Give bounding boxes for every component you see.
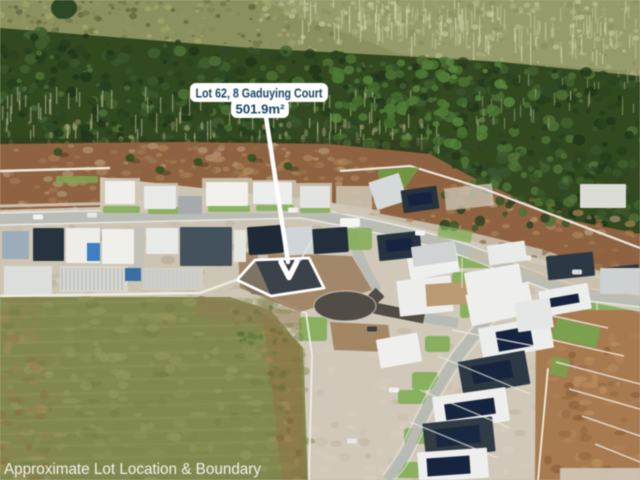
svg-text:Lot 62, 8 Gaduying Court: Lot 62, 8 Gaduying Court — [196, 86, 324, 101]
svg-text:Approximate Lot Location & Bou: Approximate Lot Location & Boundary — [4, 461, 261, 478]
svg-text:501.9m²: 501.9m² — [236, 102, 286, 117]
